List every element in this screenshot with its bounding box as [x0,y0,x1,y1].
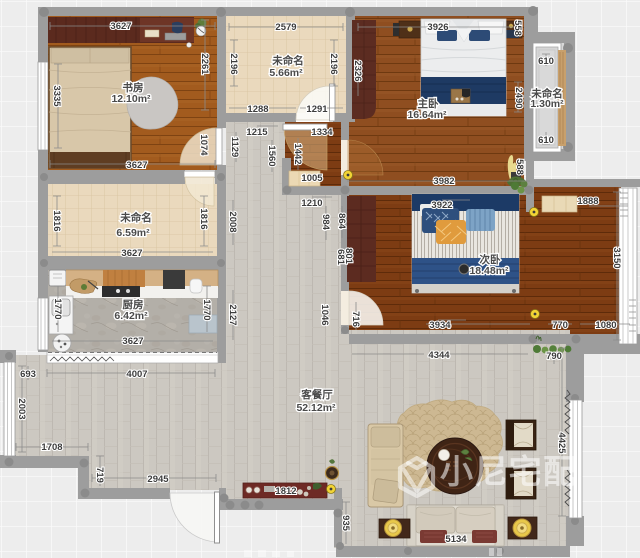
svg-text:1.30m²: 1.30m² [530,98,564,110]
svg-text:3922: 3922 [431,200,452,211]
svg-text:3627: 3627 [126,160,147,171]
svg-text:3982: 3982 [433,176,454,187]
svg-text:2008: 2008 [227,211,238,232]
svg-text:864: 864 [336,213,347,230]
svg-text:2326: 2326 [352,60,363,81]
svg-text:1074: 1074 [198,134,209,156]
svg-text:1888: 1888 [577,196,598,207]
svg-text:4425: 4425 [556,432,567,454]
svg-text:52.12m²: 52.12m² [296,402,336,414]
svg-text:1812: 1812 [275,486,296,497]
svg-text:801: 801 [343,248,354,265]
svg-text:未命名: 未命名 [119,211,152,224]
svg-text:1334: 1334 [311,127,333,138]
svg-text:4007: 4007 [126,369,147,380]
svg-text:1288: 1288 [247,104,268,115]
svg-text:790: 790 [546,351,562,362]
svg-text:1215: 1215 [246,127,268,138]
svg-text:558: 558 [512,20,523,36]
svg-text:610: 610 [538,135,554,146]
svg-text:5.66m²: 5.66m² [269,67,303,79]
svg-text:3926: 3926 [427,22,448,33]
svg-text:未命名: 未命名 [271,54,304,67]
svg-text:1442: 1442 [292,143,303,164]
svg-text:935: 935 [340,515,351,532]
svg-text:588: 588 [514,159,525,175]
svg-text:16.64m²: 16.64m² [407,109,447,121]
svg-text:3934: 3934 [429,320,451,331]
svg-text:2579: 2579 [275,22,296,33]
svg-text:1816: 1816 [198,208,209,229]
svg-text:客餐厅: 客餐厅 [300,388,333,401]
svg-text:2945: 2945 [147,474,169,485]
svg-text:1770: 1770 [52,298,63,319]
svg-text:18.48m²: 18.48m² [469,265,509,277]
svg-text:984: 984 [320,214,331,231]
svg-text:1708: 1708 [41,442,62,453]
svg-text:2261: 2261 [199,53,210,75]
svg-text:1816: 1816 [51,210,62,231]
svg-text:小尼宅配: 小尼宅配 [440,453,576,490]
svg-text:1291: 1291 [306,104,328,115]
svg-text:693: 693 [20,369,36,380]
svg-text:610: 610 [538,56,554,67]
svg-text:1005: 1005 [301,173,323,184]
svg-text:6.59m²: 6.59m² [116,227,150,239]
svg-text:1129: 1129 [229,137,240,158]
svg-text:1046: 1046 [319,304,330,325]
svg-text:2127: 2127 [227,304,238,325]
svg-text:1080: 1080 [595,320,616,331]
svg-text:4344: 4344 [428,350,450,361]
svg-text:2196: 2196 [328,53,339,74]
svg-text:2003: 2003 [16,398,27,419]
svg-text:2490: 2490 [513,87,524,108]
svg-text:716: 716 [350,311,361,327]
svg-text:12.10m²: 12.10m² [111,93,151,105]
svg-text:3627: 3627 [121,248,142,259]
svg-text:2196: 2196 [228,53,239,74]
svg-text:3150: 3150 [611,247,622,268]
svg-text:3627: 3627 [122,336,143,347]
svg-text:6.42m²: 6.42m² [114,310,148,322]
svg-text:3335: 3335 [51,85,62,107]
svg-text:1560: 1560 [266,145,277,166]
svg-text:5134: 5134 [445,534,467,545]
svg-text:1770: 1770 [201,299,212,320]
svg-text:719: 719 [94,467,105,483]
svg-text:770: 770 [552,320,568,331]
svg-text:1210: 1210 [301,198,322,209]
svg-text:3627: 3627 [110,21,131,32]
